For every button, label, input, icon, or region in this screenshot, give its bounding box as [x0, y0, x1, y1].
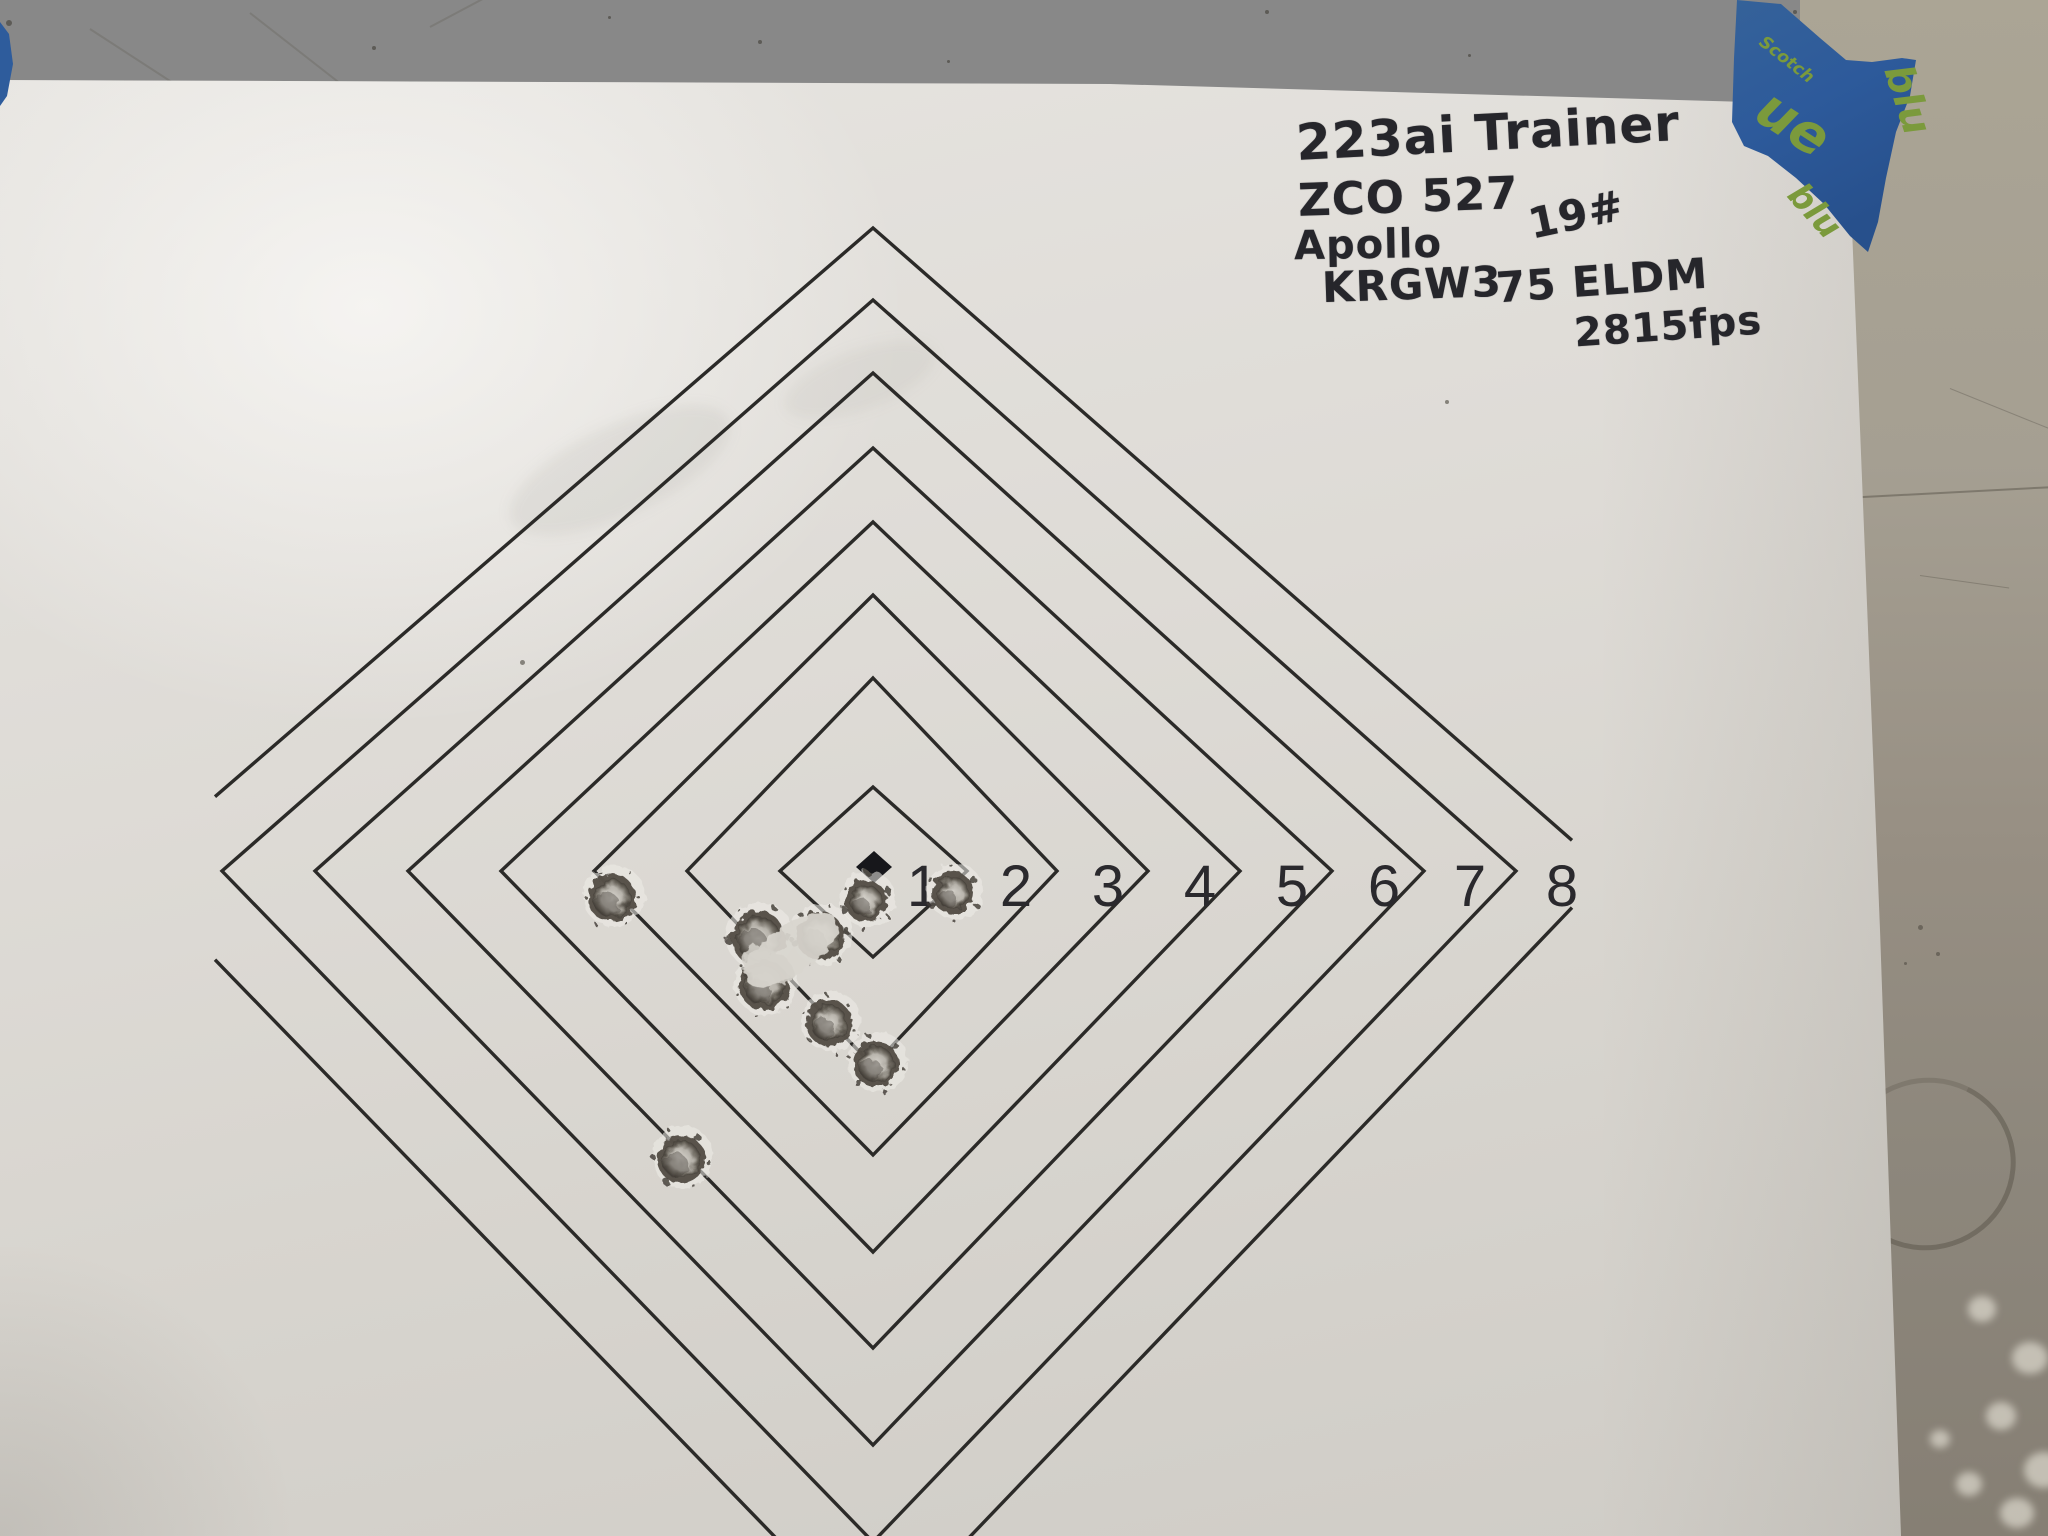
painters-tape-left-edge [0, 22, 13, 106]
range-photo: 12345678 223ai Trainer ZCO 527 19# Apoll… [0, 0, 2048, 1536]
painters-tape-layer: Scotch ue blu blu [0, 0, 2048, 1536]
